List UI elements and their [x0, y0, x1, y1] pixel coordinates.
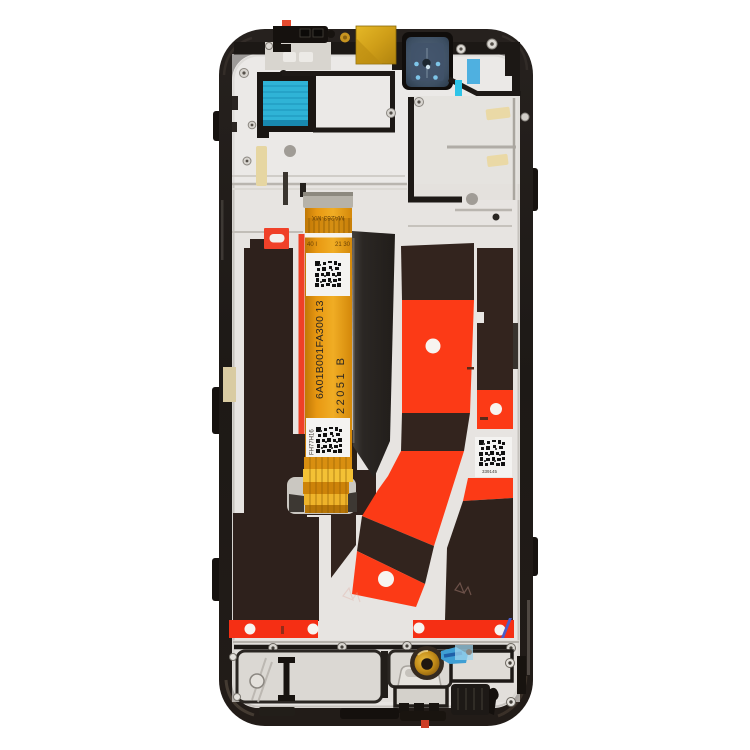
- svg-text:FH77H16: FH77H16: [310, 429, 316, 455]
- svg-text:22051 B: 22051 B: [335, 356, 347, 414]
- svg-text:21 30: 21 30: [335, 242, 351, 248]
- svg-text:339145: 339145: [482, 469, 498, 474]
- svg-text:MA263-MX: MA263-MX: [311, 214, 344, 221]
- svg-text:6A01B001FA300 13: 6A01B001FA300 13: [314, 300, 326, 399]
- svg-text:40 I: 40 I: [307, 242, 317, 248]
